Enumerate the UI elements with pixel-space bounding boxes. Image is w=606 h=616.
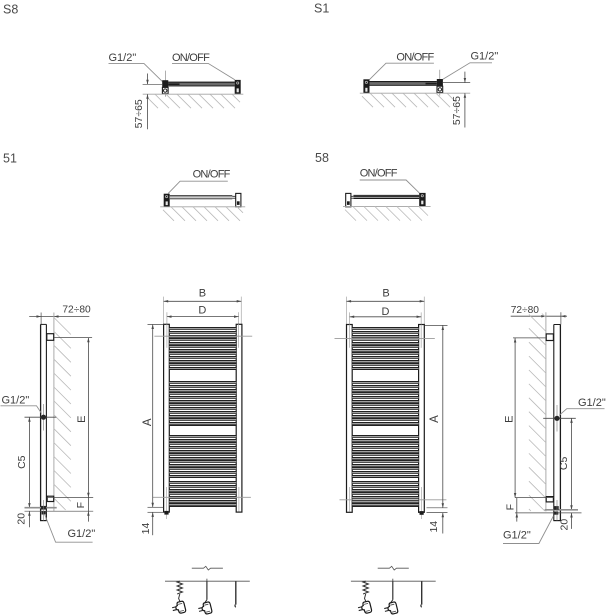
svg-text:E: E (76, 416, 88, 423)
svg-text:D: D (382, 306, 390, 318)
svg-text:G1/2": G1/2" (578, 397, 606, 409)
svg-text:ON/OFF: ON/OFF (396, 52, 434, 64)
svg-text:A: A (142, 418, 154, 426)
svg-text:S8: S8 (3, 3, 18, 17)
svg-text:58: 58 (315, 151, 329, 165)
svg-text:G1/2": G1/2" (2, 395, 30, 407)
svg-text:D: D (198, 305, 206, 317)
svg-text:51: 51 (3, 152, 17, 166)
svg-text:14: 14 (428, 521, 440, 533)
svg-text:20: 20 (559, 519, 571, 531)
svg-text:72÷80: 72÷80 (511, 305, 540, 316)
svg-text:B: B (382, 287, 389, 299)
svg-text:72÷80: 72÷80 (62, 305, 91, 316)
svg-text:ON/OFF: ON/OFF (360, 168, 398, 180)
svg-text:G1/2": G1/2" (109, 52, 137, 64)
svg-text:F: F (505, 504, 517, 510)
svg-text:ON/OFF: ON/OFF (172, 52, 210, 64)
svg-text:14: 14 (140, 523, 152, 535)
svg-text:G1/2": G1/2" (503, 530, 531, 542)
svg-text:G1/2": G1/2" (68, 528, 96, 540)
svg-text:57÷65: 57÷65 (451, 96, 463, 125)
svg-text:C5: C5 (558, 457, 570, 471)
svg-text:B: B (199, 288, 206, 300)
svg-text:20: 20 (15, 513, 27, 525)
svg-text:A: A (429, 415, 441, 423)
svg-text:F: F (75, 502, 87, 508)
svg-text:E: E (504, 416, 516, 423)
svg-text:57÷65: 57÷65 (133, 99, 145, 128)
svg-text:G1/2": G1/2" (471, 51, 499, 63)
svg-text:C5: C5 (16, 455, 28, 469)
svg-text:ON/OFF: ON/OFF (193, 169, 231, 181)
svg-text:S1: S1 (314, 2, 329, 16)
